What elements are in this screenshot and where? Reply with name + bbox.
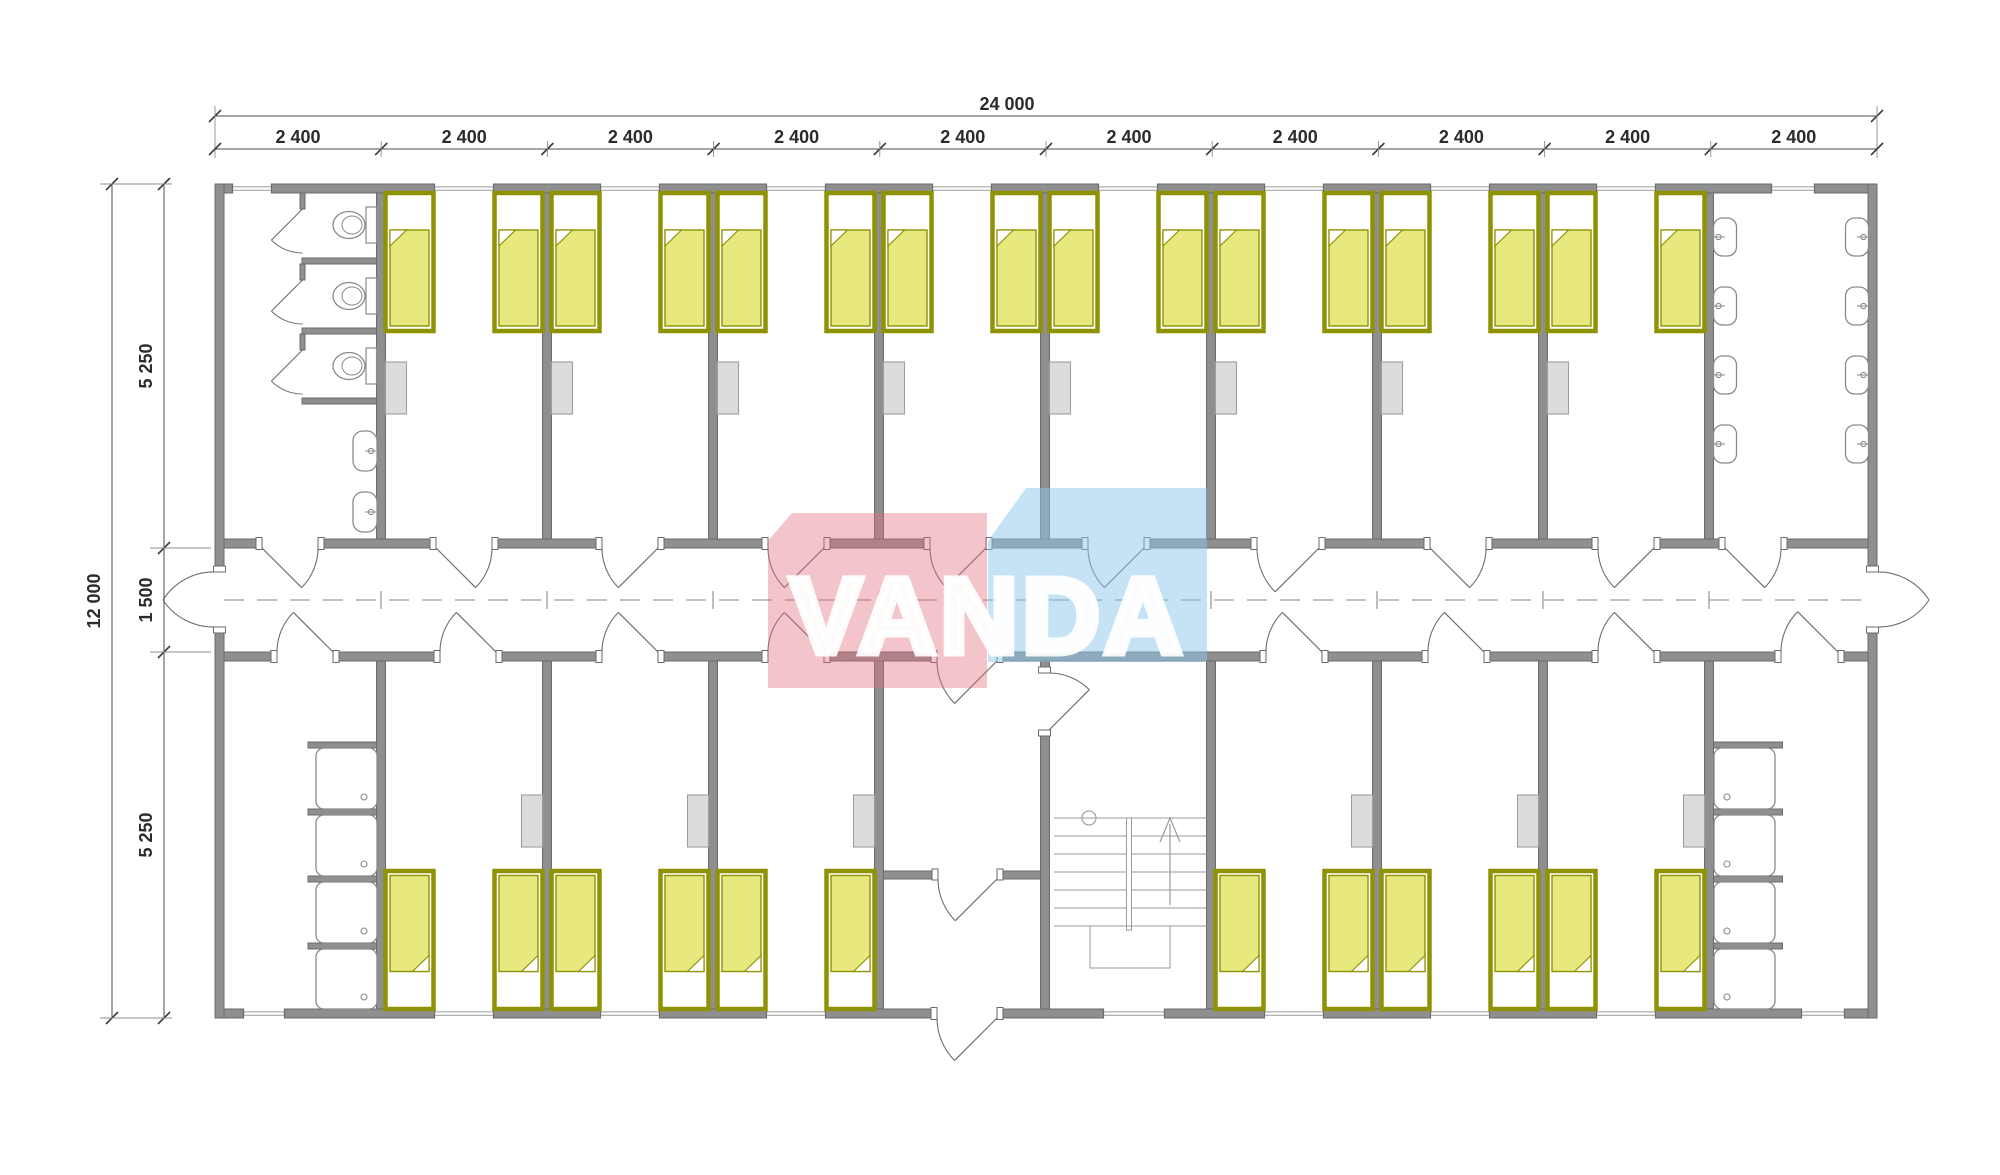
cabinet [522, 795, 543, 847]
door-jamb [496, 651, 502, 663]
door-jamb [762, 538, 768, 550]
bed-blanket [390, 876, 429, 972]
door-opening [262, 538, 318, 549]
door-jamb [997, 869, 1003, 880]
bed-blanket [1661, 876, 1700, 972]
bed-blanket [1495, 230, 1534, 326]
door-jamb [1867, 627, 1879, 633]
window [600, 184, 660, 194]
bed-blanket [1552, 230, 1591, 326]
window [1098, 184, 1158, 194]
shower-tray [1714, 748, 1775, 809]
door-jamb [1486, 538, 1492, 550]
bed-blanket [1552, 876, 1591, 972]
door-opening [1428, 651, 1484, 662]
bed-blanket [1329, 876, 1368, 972]
door-opening [1040, 673, 1051, 730]
door-opening [1266, 651, 1322, 662]
bed-blanket [888, 230, 927, 326]
wall [1714, 876, 1783, 882]
wall [308, 742, 377, 748]
window [1430, 184, 1490, 194]
door-jamb [1654, 651, 1660, 663]
wall [884, 871, 939, 879]
dim-label: 2 400 [1273, 127, 1318, 147]
wall [1714, 742, 1783, 748]
dim-label: 2 400 [1771, 127, 1816, 147]
door-opening [1257, 538, 1319, 549]
dim-label: 5 250 [136, 812, 156, 857]
bed-blanket [499, 230, 538, 326]
door-jamb [596, 538, 602, 550]
bed-blanket [556, 230, 595, 326]
toilet-cistern [366, 278, 377, 314]
door-jamb [1654, 538, 1660, 550]
door-opening [1867, 572, 1878, 627]
bed-blanket [1495, 876, 1534, 972]
wall [308, 876, 377, 882]
bed-blanket [1661, 230, 1700, 326]
door-jamb [1039, 730, 1051, 736]
bed-blanket [1329, 230, 1368, 326]
window [1596, 1009, 1656, 1019]
bed-blanket [665, 230, 704, 326]
door-jamb [214, 566, 226, 572]
door-jamb [1484, 651, 1490, 663]
door-jamb [932, 869, 938, 880]
dim-label: 24 000 [979, 94, 1034, 114]
dim-label: 2 400 [442, 127, 487, 147]
dim-label: 12 000 [84, 573, 104, 628]
door-jamb [658, 538, 664, 550]
door-jamb [214, 627, 226, 633]
cabinet [1382, 362, 1403, 414]
cabinet [386, 362, 407, 414]
wall [300, 334, 305, 350]
shower-tray [1714, 882, 1775, 943]
dim-label: 2 400 [608, 127, 653, 147]
wall [302, 398, 377, 404]
door-opening [1725, 538, 1781, 549]
bed-blanket [831, 876, 870, 972]
floor-plan-page: VANDA24 0002 4002 4002 4002 4002 4002 40… [0, 0, 2000, 1175]
window [932, 184, 992, 194]
stair-divider [1127, 818, 1132, 930]
bed-blanket [1386, 876, 1425, 972]
door-opening [440, 651, 496, 662]
toilet-cistern [366, 207, 377, 243]
door-jamb [1424, 538, 1430, 550]
door-jamb [271, 651, 277, 663]
wall [1714, 943, 1783, 949]
bed-blanket [831, 230, 870, 326]
cabinet [1518, 795, 1539, 847]
cabinet [1684, 795, 1705, 847]
bed-blanket [1220, 230, 1259, 326]
dim-label: 1 500 [136, 577, 156, 622]
wall [300, 264, 305, 280]
door-jamb [1251, 538, 1257, 550]
bed-blanket [722, 230, 761, 326]
wall [1714, 809, 1783, 815]
window [766, 1009, 826, 1019]
shower-tray [1714, 815, 1775, 876]
shower-tray [316, 815, 377, 876]
wall [302, 328, 377, 334]
door-opening [1430, 538, 1486, 549]
cabinet [688, 795, 709, 847]
door-jamb [333, 651, 339, 663]
window [1771, 184, 1815, 194]
door-jamb [492, 538, 498, 550]
bed-blanket [1220, 876, 1259, 972]
watermark-text: VANDA [790, 555, 1186, 676]
door-opening [602, 538, 658, 549]
door-jamb [1775, 651, 1781, 663]
window [1264, 1009, 1324, 1019]
window [232, 184, 272, 194]
door-opening [1781, 651, 1838, 662]
window [1430, 1009, 1490, 1019]
cabinet [718, 362, 739, 414]
door-jamb [1319, 538, 1325, 550]
door-opening [1598, 651, 1654, 662]
door-jamb [658, 651, 664, 663]
wall [1041, 730, 1050, 1009]
window [434, 184, 494, 194]
door-jamb [1260, 651, 1266, 663]
bed-blanket [997, 230, 1036, 326]
bed-blanket [1163, 230, 1202, 326]
cabinet [552, 362, 573, 414]
window [434, 1009, 494, 1019]
window [1801, 1009, 1845, 1019]
bed-blanket [1386, 230, 1425, 326]
window [1264, 184, 1324, 194]
dim-label: 2 400 [940, 127, 985, 147]
dim-label: 2 400 [1106, 127, 1151, 147]
door-opening [1598, 538, 1654, 549]
door-jamb [997, 1008, 1003, 1020]
dim-label: 2 400 [275, 127, 320, 147]
door-jamb [1781, 538, 1787, 550]
door-opening [602, 651, 658, 662]
door-jamb [1838, 651, 1844, 663]
wall [308, 943, 377, 949]
door-jamb [256, 538, 262, 550]
door-jamb [430, 538, 436, 550]
toilet-cistern [366, 348, 377, 384]
floor-plan-svg: VANDA24 0002 4002 4002 4002 4002 4002 40… [0, 0, 2000, 1175]
door-jamb [1592, 651, 1598, 663]
door-jamb [1322, 651, 1328, 663]
toilet-bowl [333, 212, 365, 239]
dim-label: 5 250 [136, 343, 156, 388]
wall [997, 871, 1041, 879]
door-opening [214, 572, 225, 627]
window [766, 184, 826, 194]
bed-blanket [499, 876, 538, 972]
door-jamb [1592, 538, 1598, 550]
door-jamb [318, 538, 324, 550]
door-opening [436, 538, 492, 549]
bed-blanket [1054, 230, 1093, 326]
dim-label: 2 400 [1439, 127, 1484, 147]
door-jamb [434, 651, 440, 663]
door-opening [277, 651, 333, 662]
window [1103, 1009, 1165, 1019]
bed-blanket [556, 876, 595, 972]
door-jamb [1719, 538, 1725, 550]
shower-tray [316, 748, 377, 809]
toilet-bowl [333, 353, 365, 380]
door-jamb [596, 651, 602, 663]
shower-tray [1714, 949, 1775, 1009]
window [243, 1009, 285, 1019]
door-jamb [1867, 566, 1879, 572]
bed-blanket [722, 876, 761, 972]
cabinet [1548, 362, 1569, 414]
shower-tray [316, 949, 377, 1009]
cabinet [854, 795, 875, 847]
door-jamb [762, 651, 768, 663]
wall [302, 258, 377, 264]
shower-tray [316, 882, 377, 943]
cabinet [1216, 362, 1237, 414]
bed-blanket [390, 230, 429, 326]
dim-label: 2 400 [1605, 127, 1650, 147]
dim-label: 2 400 [774, 127, 819, 147]
window [600, 1009, 660, 1019]
wall [300, 193, 305, 209]
wall [308, 809, 377, 815]
cabinet [1050, 362, 1071, 414]
window [1596, 184, 1656, 194]
toilet-bowl [333, 283, 365, 310]
door-jamb [931, 1008, 937, 1020]
bed-blanket [665, 876, 704, 972]
cabinet [1352, 795, 1373, 847]
door-jamb [1422, 651, 1428, 663]
cabinet [884, 362, 905, 414]
door-opening [937, 1008, 997, 1019]
